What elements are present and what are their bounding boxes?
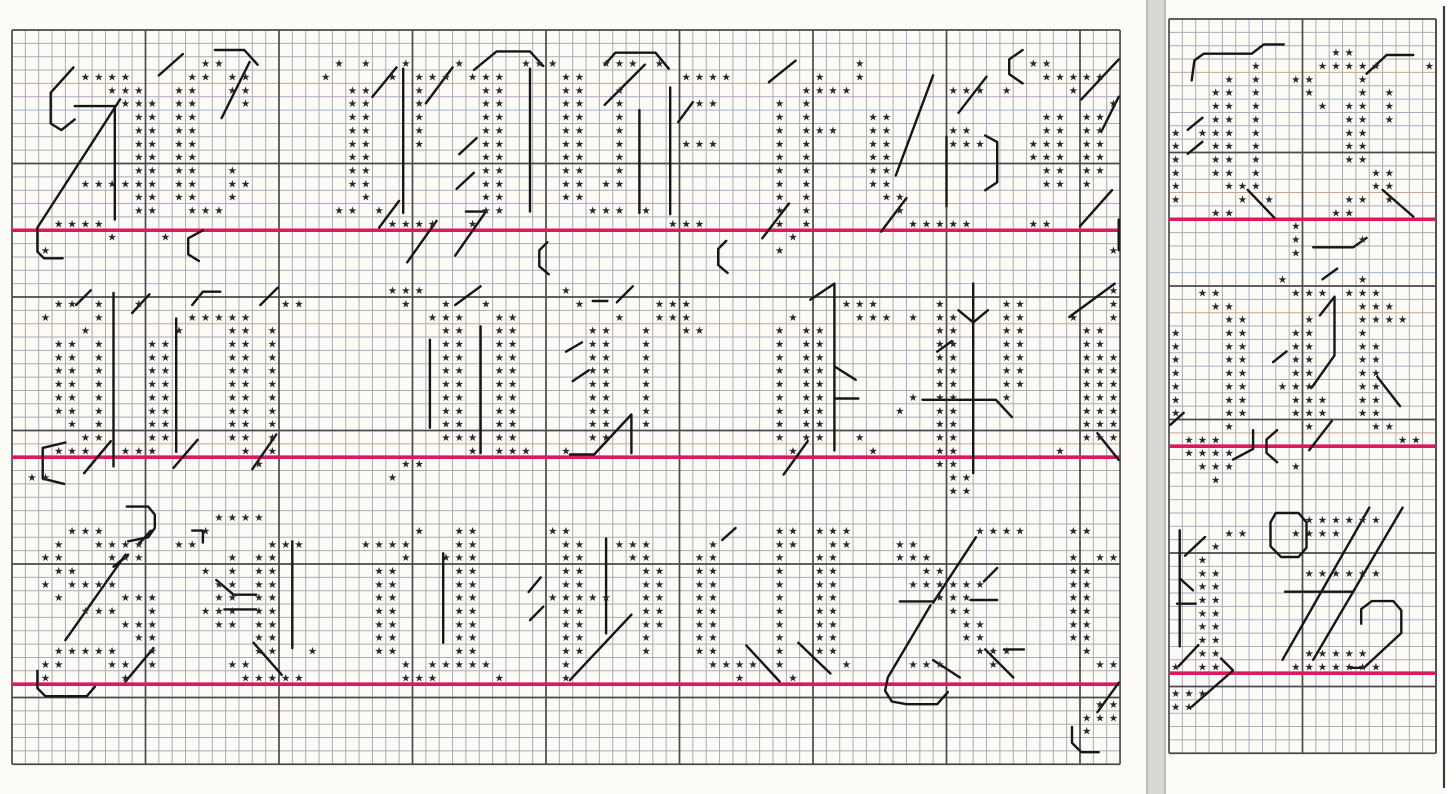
star-stitch: ★ — [855, 71, 864, 83]
star-stitch: ★ — [1055, 112, 1064, 124]
star-stitch: ★ — [1238, 381, 1247, 393]
star-stitch: ★ — [1371, 181, 1380, 193]
star-stitch: ★ — [1385, 114, 1394, 126]
star-stitch: ★ — [228, 338, 237, 350]
star-stitch: ★ — [802, 138, 811, 150]
star-stitch: ★ — [1224, 354, 1233, 366]
star-stitch: ★ — [641, 579, 650, 591]
star-stitch: ★ — [361, 98, 370, 110]
star-stitch: ★ — [1224, 314, 1233, 326]
star-stitch: ★ — [1055, 152, 1064, 164]
star-stitch: ★ — [815, 646, 824, 658]
star-stitch: ★ — [615, 112, 624, 124]
star-stitch: ★ — [241, 445, 250, 457]
star-stitch: ★ — [1015, 352, 1024, 364]
star-stitch: ★ — [1344, 514, 1353, 526]
star-stitch: ★ — [641, 539, 650, 551]
star-stitch: ★ — [775, 552, 784, 564]
star-stitch: ★ — [201, 525, 210, 537]
star-stitch: ★ — [775, 592, 784, 604]
star-stitch: ★ — [1069, 552, 1078, 564]
star-stitch: ★ — [561, 178, 570, 190]
star-stitch: ★ — [174, 165, 183, 177]
star-stitch: ★ — [1055, 165, 1064, 177]
star-stitch: ★ — [1171, 368, 1180, 380]
star-stitch: ★ — [1211, 87, 1220, 99]
star-stitch: ★ — [454, 632, 463, 644]
star-stitch: ★ — [54, 445, 63, 457]
star-stitch: ★ — [1055, 138, 1064, 150]
star-stitch: ★ — [1002, 312, 1011, 324]
star-stitch: ★ — [935, 392, 944, 404]
star-stitch: ★ — [1398, 434, 1407, 446]
star-stitch: ★ — [615, 539, 624, 551]
star-stitch: ★ — [815, 419, 824, 431]
star-stitch: ★ — [681, 298, 690, 310]
star-stitch: ★ — [348, 178, 357, 190]
star-stitch: ★ — [1385, 301, 1394, 313]
star-stitch: ★ — [948, 379, 957, 391]
star-stitch: ★ — [174, 112, 183, 124]
star-stitch: ★ — [641, 379, 650, 391]
star-stitch: ★ — [508, 405, 517, 417]
star-stitch: ★ — [67, 405, 76, 417]
star-stitch: ★ — [628, 539, 637, 551]
star-stitch: ★ — [695, 552, 704, 564]
star-stitch: ★ — [67, 218, 76, 230]
star-stitch: ★ — [374, 205, 383, 217]
star-stitch: ★ — [428, 312, 437, 324]
star-stitch: ★ — [908, 579, 917, 591]
star-stitch: ★ — [134, 632, 143, 644]
star-stitch: ★ — [268, 672, 277, 684]
star-stitch: ★ — [454, 325, 463, 337]
star-stitch: ★ — [855, 58, 864, 70]
star-stitch: ★ — [454, 419, 463, 431]
star-stitch: ★ — [441, 659, 450, 671]
star-stitch: ★ — [815, 605, 824, 617]
star-stitch: ★ — [495, 205, 504, 217]
star-stitch: ★ — [1082, 125, 1091, 137]
star-stitch: ★ — [228, 71, 237, 83]
star-stitch: ★ — [935, 338, 944, 350]
star-stitch: ★ — [548, 525, 557, 537]
star-stitch: ★ — [228, 432, 237, 444]
star-stitch: ★ — [561, 125, 570, 137]
star-stitch: ★ — [161, 232, 170, 244]
star-stitch: ★ — [1251, 167, 1260, 179]
star-stitch: ★ — [802, 392, 811, 404]
star-stitch: ★ — [454, 365, 463, 377]
star-stitch: ★ — [468, 646, 477, 658]
star-stitch: ★ — [601, 365, 610, 377]
star-stitch: ★ — [1211, 635, 1220, 647]
star-stitch: ★ — [1331, 648, 1340, 660]
star-stitch: ★ — [1069, 525, 1078, 537]
star-stitch: ★ — [561, 619, 570, 631]
star-stitch: ★ — [94, 579, 103, 591]
star-stitch: ★ — [1055, 445, 1064, 457]
star-stitch: ★ — [868, 445, 877, 457]
star-stitch: ★ — [1109, 298, 1118, 310]
star-stitch: ★ — [868, 138, 877, 150]
star-stitch: ★ — [228, 325, 237, 337]
star-stitch: ★ — [268, 405, 277, 417]
star-stitch: ★ — [214, 619, 223, 631]
star-stitch: ★ — [775, 205, 784, 217]
star-stitch: ★ — [561, 138, 570, 150]
star-stitch: ★ — [468, 71, 477, 83]
star-stitch: ★ — [948, 592, 957, 604]
star-stitch: ★ — [868, 178, 877, 190]
star-stitch: ★ — [1385, 421, 1394, 433]
star-stitch: ★ — [441, 338, 450, 350]
star-stitch: ★ — [815, 379, 824, 391]
star-stitch: ★ — [695, 98, 704, 110]
star-stitch: ★ — [1278, 381, 1287, 393]
star-stitch: ★ — [775, 352, 784, 364]
star-stitch: ★ — [147, 192, 156, 204]
star-stitch: ★ — [708, 565, 717, 577]
star-stitch: ★ — [481, 165, 490, 177]
star-stitch: ★ — [948, 138, 957, 150]
star-stitch: ★ — [1318, 528, 1327, 540]
star-stitch: ★ — [561, 539, 570, 551]
star-stitch: ★ — [1358, 381, 1367, 393]
star-stitch: ★ — [1095, 138, 1104, 150]
star-stitch: ★ — [695, 71, 704, 83]
star-stitch: ★ — [468, 445, 477, 457]
star-stitch: ★ — [1069, 632, 1078, 644]
star-stitch: ★ — [241, 392, 250, 404]
star-stitch: ★ — [334, 58, 343, 70]
star-stitch: ★ — [802, 112, 811, 124]
star-stitch: ★ — [975, 632, 984, 644]
star-stitch: ★ — [1304, 327, 1313, 339]
star-stitch: ★ — [1358, 314, 1367, 326]
star-stitch: ★ — [1109, 699, 1118, 711]
star-stitch: ★ — [1251, 181, 1260, 193]
star-stitch: ★ — [962, 138, 971, 150]
star-stitch: ★ — [228, 312, 237, 324]
star-stitch: ★ — [601, 325, 610, 337]
star-stitch: ★ — [94, 71, 103, 83]
star-stitch: ★ — [134, 298, 143, 310]
star-stitch: ★ — [922, 579, 931, 591]
star-stitch: ★ — [561, 85, 570, 97]
star-stitch: ★ — [775, 619, 784, 631]
star-stitch: ★ — [1029, 138, 1038, 150]
star-stitch: ★ — [1002, 85, 1011, 97]
star-stitch: ★ — [174, 98, 183, 110]
star-stitch: ★ — [975, 85, 984, 97]
star-stitch: ★ — [641, 552, 650, 564]
star-stitch: ★ — [641, 592, 650, 604]
star-stitch: ★ — [481, 659, 490, 671]
star-stitch: ★ — [1211, 648, 1220, 660]
star-stitch: ★ — [561, 112, 570, 124]
star-stitch: ★ — [1042, 138, 1051, 150]
star-stitch: ★ — [1069, 565, 1078, 577]
star-stitch: ★ — [948, 485, 957, 497]
star-stitch: ★ — [1082, 325, 1091, 337]
star-stitch: ★ — [681, 312, 690, 324]
star-stitch: ★ — [468, 619, 477, 631]
star-stitch: ★ — [548, 592, 557, 604]
star-stitch: ★ — [281, 539, 290, 551]
star-stitch: ★ — [1171, 194, 1180, 206]
star-stitch: ★ — [802, 365, 811, 377]
star-stitch: ★ — [1224, 154, 1233, 166]
star-stitch: ★ — [1095, 338, 1104, 350]
star-stitch: ★ — [1358, 368, 1367, 380]
star-stitch: ★ — [1304, 354, 1313, 366]
star-stitch: ★ — [1291, 461, 1300, 473]
star-stitch: ★ — [1082, 605, 1091, 617]
star-stitch: ★ — [214, 312, 223, 324]
star-stitch: ★ — [948, 85, 957, 97]
star-stitch: ★ — [214, 58, 223, 70]
star-stitch: ★ — [588, 205, 597, 217]
star-stitch: ★ — [788, 445, 797, 457]
star-stitch: ★ — [775, 218, 784, 230]
star-stitch: ★ — [147, 138, 156, 150]
star-stitch: ★ — [81, 605, 90, 617]
star-stitch: ★ — [1095, 405, 1104, 417]
star-stitch: ★ — [1171, 381, 1180, 393]
star-stitch: ★ — [775, 165, 784, 177]
star-stitch: ★ — [254, 552, 263, 564]
star-stitch: ★ — [1109, 392, 1118, 404]
star-stitch: ★ — [1109, 552, 1118, 564]
star-stitch: ★ — [855, 298, 864, 310]
star-stitch: ★ — [828, 646, 837, 658]
star-stitch: ★ — [1304, 528, 1313, 540]
star-stitch: ★ — [401, 552, 410, 564]
star-stitch: ★ — [441, 552, 450, 564]
star-stitch: ★ — [575, 165, 584, 177]
star-stitch: ★ — [1082, 165, 1091, 177]
star-stitch: ★ — [948, 472, 957, 484]
star-stitch: ★ — [201, 605, 210, 617]
star-stitch: ★ — [1198, 661, 1207, 673]
star-stitch: ★ — [588, 392, 597, 404]
star-stitch: ★ — [641, 405, 650, 417]
star-stitch: ★ — [988, 525, 997, 537]
star-stitch: ★ — [1015, 298, 1024, 310]
star-stitch: ★ — [147, 152, 156, 164]
star-stitch: ★ — [1042, 178, 1051, 190]
star-stitch: ★ — [895, 192, 904, 204]
star-stitch: ★ — [1251, 74, 1260, 86]
star-stitch: ★ — [1358, 354, 1367, 366]
star-stitch: ★ — [1291, 234, 1300, 246]
star-stitch: ★ — [1211, 594, 1220, 606]
star-stitch: ★ — [1224, 74, 1233, 86]
star-stitch: ★ — [1082, 525, 1091, 537]
star-stitch: ★ — [388, 472, 397, 484]
star-stitch: ★ — [815, 338, 824, 350]
star-stitch: ★ — [81, 445, 90, 457]
star-stitch: ★ — [802, 379, 811, 391]
star-stitch: ★ — [935, 405, 944, 417]
star-stitch: ★ — [1211, 461, 1220, 473]
star-stitch: ★ — [361, 539, 370, 551]
star-stitch: ★ — [107, 659, 116, 671]
star-stitch: ★ — [1344, 47, 1353, 59]
star-stitch: ★ — [495, 365, 504, 377]
star-stitch: ★ — [481, 178, 490, 190]
star-stitch: ★ — [508, 352, 517, 364]
star-stitch: ★ — [1224, 461, 1233, 473]
star-stitch: ★ — [1082, 405, 1091, 417]
star-stitch: ★ — [1224, 327, 1233, 339]
star-stitch: ★ — [481, 138, 490, 150]
star-stitch: ★ — [575, 539, 584, 551]
star-stitch: ★ — [174, 152, 183, 164]
star-stitch: ★ — [268, 646, 277, 658]
star-stitch: ★ — [695, 646, 704, 658]
star-stitch: ★ — [855, 312, 864, 324]
star-stitch: ★ — [441, 432, 450, 444]
star-stitch: ★ — [1042, 165, 1051, 177]
star-stitch: ★ — [1211, 541, 1220, 553]
star-stitch: ★ — [1198, 568, 1207, 580]
star-stitch: ★ — [1224, 528, 1233, 540]
star-stitch: ★ — [201, 312, 210, 324]
star-stitch: ★ — [468, 552, 477, 564]
star-stitch: ★ — [695, 632, 704, 644]
star-stitch: ★ — [268, 552, 277, 564]
star-stitch: ★ — [1371, 354, 1380, 366]
star-stitch: ★ — [575, 579, 584, 591]
star-stitch: ★ — [1238, 354, 1247, 366]
star-stitch: ★ — [361, 58, 370, 70]
star-stitch: ★ — [615, 312, 624, 324]
star-stitch: ★ — [828, 125, 837, 137]
star-stitch: ★ — [1069, 579, 1078, 591]
star-stitch: ★ — [788, 232, 797, 244]
star-stitch: ★ — [268, 325, 277, 337]
star-stitch: ★ — [241, 325, 250, 337]
star-stitch: ★ — [1198, 461, 1207, 473]
star-stitch: ★ — [882, 312, 891, 324]
star-stitch: ★ — [268, 419, 277, 431]
star-stitch: ★ — [41, 472, 50, 484]
star-stitch: ★ — [561, 646, 570, 658]
star-stitch: ★ — [67, 445, 76, 457]
star-stitch: ★ — [842, 525, 851, 537]
star-stitch: ★ — [241, 419, 250, 431]
star-stitch: ★ — [708, 619, 717, 631]
star-stitch: ★ — [1015, 338, 1024, 350]
star-stitch: ★ — [41, 672, 50, 684]
star-stitch: ★ — [1198, 688, 1207, 700]
star-stitch: ★ — [1211, 448, 1220, 460]
star-stitch: ★ — [828, 592, 837, 604]
star-stitch: ★ — [54, 392, 63, 404]
star-stitch: ★ — [1344, 661, 1353, 673]
star-stitch: ★ — [1411, 434, 1420, 446]
star-stitch: ★ — [187, 192, 196, 204]
star-stitch: ★ — [508, 379, 517, 391]
star-stitch: ★ — [495, 165, 504, 177]
star-stitch: ★ — [975, 579, 984, 591]
star-stitch: ★ — [254, 619, 263, 631]
star-stitch: ★ — [147, 365, 156, 377]
star-stitch: ★ — [1425, 60, 1434, 72]
star-stitch: ★ — [882, 125, 891, 137]
star-stitch: ★ — [1385, 314, 1394, 326]
star-stitch: ★ — [588, 405, 597, 417]
star-stitch: ★ — [575, 98, 584, 110]
star-stitch: ★ — [1082, 138, 1091, 150]
star-stitch: ★ — [454, 312, 463, 324]
star-stitch: ★ — [388, 218, 397, 230]
star-stitch: ★ — [908, 218, 917, 230]
star-stitch: ★ — [882, 178, 891, 190]
star-stitch: ★ — [495, 392, 504, 404]
star-stitch: ★ — [334, 205, 343, 217]
star-stitch: ★ — [975, 646, 984, 658]
star-stitch: ★ — [1358, 87, 1367, 99]
star-stitch: ★ — [54, 405, 63, 417]
star-stitch: ★ — [121, 672, 130, 684]
star-stitch: ★ — [1042, 112, 1051, 124]
star-stitch: ★ — [615, 178, 624, 190]
star-stitch: ★ — [1318, 101, 1327, 113]
star-stitch: ★ — [241, 71, 250, 83]
star-stitch: ★ — [962, 125, 971, 137]
star-stitch: ★ — [388, 285, 397, 297]
star-stitch: ★ — [1385, 181, 1394, 193]
star-stitch: ★ — [1251, 141, 1260, 153]
star-stitch: ★ — [615, 58, 624, 70]
star-stitch: ★ — [935, 565, 944, 577]
star-stitch: ★ — [414, 98, 423, 110]
star-stitch: ★ — [802, 178, 811, 190]
star-stitch: ★ — [1291, 74, 1300, 86]
star-stitch: ★ — [868, 112, 877, 124]
star-stitch: ★ — [214, 605, 223, 617]
star-stitch: ★ — [388, 565, 397, 577]
star-stitch: ★ — [948, 338, 957, 350]
star-stitch: ★ — [1015, 365, 1024, 377]
star-stitch: ★ — [962, 485, 971, 497]
star-stitch: ★ — [1082, 178, 1091, 190]
star-stitch: ★ — [828, 565, 837, 577]
star-stitch: ★ — [1109, 405, 1118, 417]
star-stitch: ★ — [1318, 394, 1327, 406]
star-stitch: ★ — [1029, 58, 1038, 70]
star-stitch: ★ — [161, 352, 170, 364]
star-stitch: ★ — [454, 619, 463, 631]
star-stitch: ★ — [361, 165, 370, 177]
star-stitch: ★ — [815, 565, 824, 577]
star-stitch: ★ — [508, 338, 517, 350]
star-stitch: ★ — [67, 525, 76, 537]
star-stitch: ★ — [922, 659, 931, 671]
star-stitch: ★ — [107, 552, 116, 564]
star-stitch: ★ — [441, 392, 450, 404]
star-stitch: ★ — [454, 379, 463, 391]
star-stitch: ★ — [147, 419, 156, 431]
star-stitch: ★ — [1082, 365, 1091, 377]
star-stitch: ★ — [1095, 325, 1104, 337]
star-stitch: ★ — [374, 646, 383, 658]
star-stitch: ★ — [601, 338, 610, 350]
star-stitch: ★ — [948, 365, 957, 377]
